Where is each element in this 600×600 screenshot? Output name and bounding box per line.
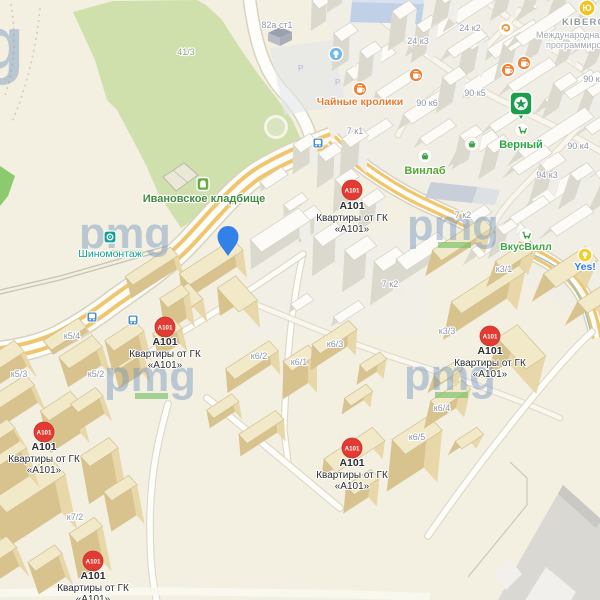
svg-text:А101: А101 (339, 200, 364, 212)
svg-text:7 к2: 7 к2 (455, 210, 471, 220)
svg-text:pmg: pmg (0, 1, 24, 85)
svg-text:к6/5: к6/5 (409, 432, 425, 442)
svg-text:«А101»: «А101» (27, 465, 62, 476)
svg-text:«А101»: «А101» (335, 224, 370, 235)
svg-text:90 к6: 90 к6 (416, 98, 437, 108)
svg-text:А101: А101 (80, 570, 105, 582)
svg-text:А101: А101 (345, 445, 360, 452)
svg-text:Чайные кролики: Чайные кролики (317, 96, 403, 108)
svg-text:Винлаб: Винлаб (404, 165, 445, 177)
svg-text:ВкусВилл: ВкусВилл (500, 241, 552, 253)
svg-text:А101: А101 (339, 457, 364, 469)
svg-text:41/3: 41/3 (177, 47, 195, 57)
svg-text:82а ст1: 82а ст1 (261, 20, 292, 30)
svg-text:Квартиры от ГК: Квартиры от ГК (8, 454, 80, 465)
svg-text:Верный: Верный (499, 139, 543, 151)
svg-text:90 к5: 90 к5 (464, 88, 485, 98)
svg-text:Ивановское кладбище: Ивановское кладбище (143, 193, 266, 205)
svg-text:«А101»: «А101» (76, 594, 111, 600)
svg-text:к5/2: к5/2 (88, 369, 104, 379)
svg-text:«А101»: «А101» (473, 369, 508, 380)
svg-text:А101: А101 (158, 324, 173, 331)
svg-text:7 к1: 7 к1 (347, 126, 363, 136)
svg-text:Yes!: Yes! (574, 261, 596, 273)
svg-text:программирован: программирован (546, 40, 600, 50)
svg-text:«А101»: «А101» (148, 360, 183, 371)
svg-text:P: P (298, 64, 303, 73)
svg-text:90 к3: 90 к3 (583, 74, 600, 84)
svg-text:Международная шко: Международная шко (536, 30, 600, 40)
svg-text:А101: А101 (483, 333, 498, 340)
svg-text:к7/2: к7/2 (67, 512, 83, 522)
svg-text:Ю: Ю (582, 3, 591, 13)
svg-text:Квартиры от ГК: Квартиры от ГК (316, 470, 388, 481)
svg-text:А101: А101 (31, 441, 56, 453)
svg-text:Квартиры от ГК: Квартиры от ГК (316, 213, 388, 224)
svg-text:к6/3: к6/3 (327, 339, 343, 349)
svg-text:Шиномонтаж: Шиномонтаж (78, 248, 142, 260)
svg-text:А101: А101 (152, 336, 177, 348)
svg-text:А101: А101 (37, 429, 52, 436)
svg-text:Квартиры от ГК: Квартиры от ГК (57, 583, 129, 594)
svg-text:к3/3: к3/3 (439, 326, 455, 336)
svg-text:24 к2: 24 к2 (459, 23, 480, 33)
svg-text:90 к4: 90 к4 (567, 141, 588, 151)
svg-text:к3/1: к3/1 (496, 264, 512, 274)
svg-text:к6/4: к6/4 (434, 403, 450, 413)
svg-text:7 к2: 7 к2 (382, 279, 398, 289)
svg-text:Квартиры от ГК: Квартиры от ГК (454, 358, 526, 369)
svg-text:KIBERO: KIBERO (562, 17, 600, 28)
svg-text:94 к3: 94 к3 (536, 170, 557, 180)
svg-text:P: P (335, 78, 340, 87)
svg-text:к5/4: к5/4 (64, 331, 80, 341)
svg-text:к6/2: к6/2 (251, 351, 267, 361)
svg-text:А101: А101 (345, 187, 360, 194)
svg-text:к6/1: к6/1 (291, 357, 307, 367)
svg-text:А101: А101 (477, 345, 502, 357)
svg-text:«А101»: «А101» (335, 481, 370, 492)
svg-text:24 к3: 24 к3 (407, 36, 428, 46)
svg-text:к5/3: к5/3 (11, 369, 27, 379)
svg-text:А101: А101 (86, 558, 101, 565)
svg-text:Квартиры от ГК: Квартиры от ГК (129, 349, 201, 360)
